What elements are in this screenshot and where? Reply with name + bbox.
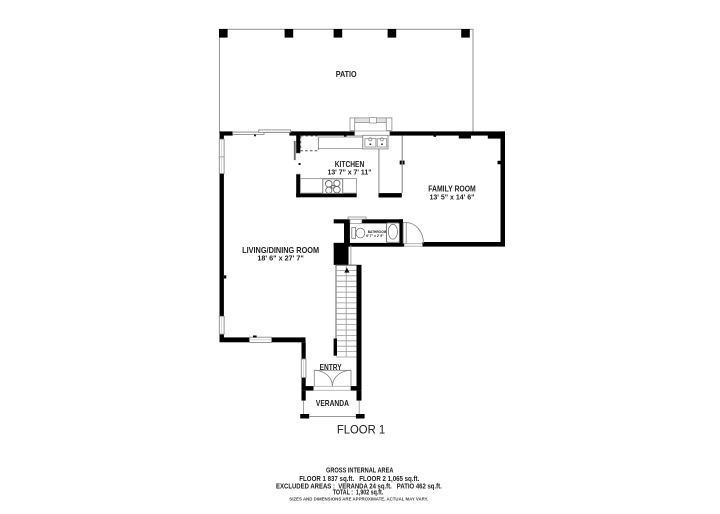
svg-text:VERANDA: VERANDA	[316, 398, 349, 408]
svg-text:ENTRY: ENTRY	[320, 363, 343, 372]
svg-text:6' 7" x 2' 9": 6' 7" x 2' 9"	[366, 234, 384, 238]
svg-text:FLOOR 1: FLOOR 1	[337, 422, 385, 436]
svg-text:13' 5" x 14' 6": 13' 5" x 14' 6"	[430, 192, 475, 201]
svg-text:13' 7" x 7' 11": 13' 7" x 7' 11"	[328, 167, 372, 176]
svg-text:SIZES AND DIMENSIONS ARE APPRO: SIZES AND DIMENSIONS ARE APPROXIMATE, AC…	[289, 496, 428, 501]
svg-text:PATIO: PATIO	[336, 69, 357, 79]
svg-text:TOTAL : 1,902 sq.ft.: TOTAL : 1,902 sq.ft.	[333, 487, 384, 496]
svg-text:18' 6" x 27' 7": 18' 6" x 27' 7"	[257, 253, 304, 262]
